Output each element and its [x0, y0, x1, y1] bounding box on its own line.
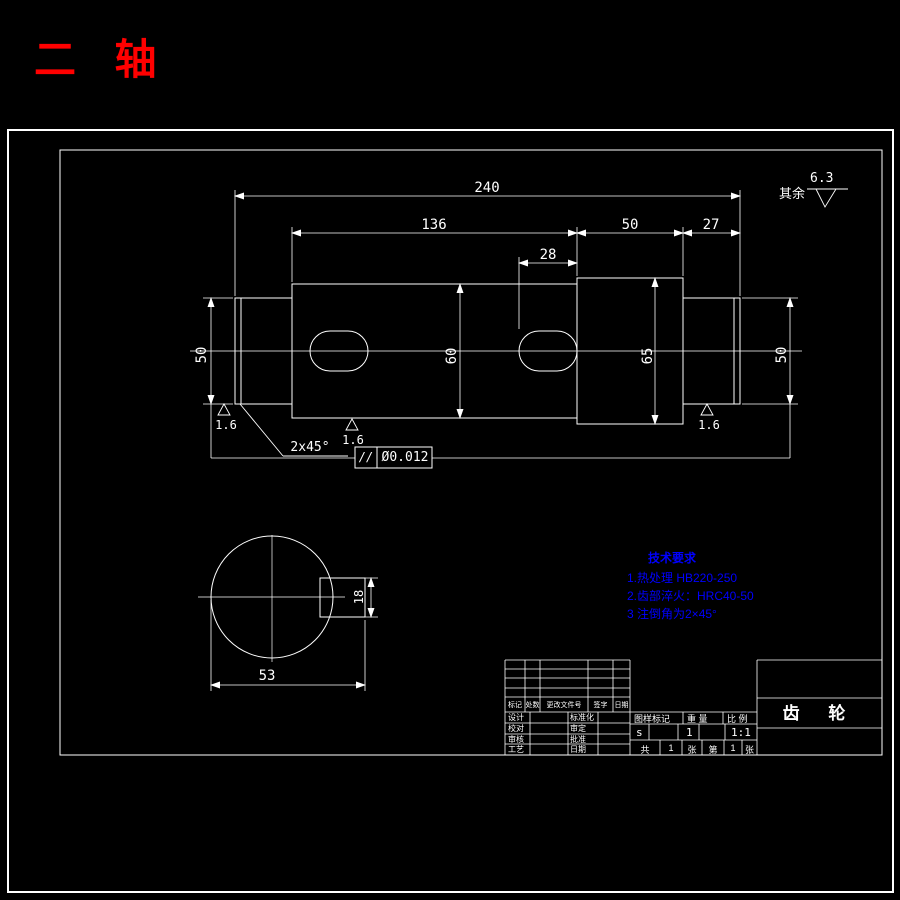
roughness-value-right: 1.6	[698, 419, 720, 431]
staff-design-label: 设计	[508, 714, 524, 722]
tech-requirement-1: 1.热处理 HB220-250	[627, 569, 737, 586]
staff-review-label: 审核	[508, 736, 524, 744]
parallelism-symbol: //	[359, 451, 373, 463]
cad-drawing-page: 二 轴 其余 6.3 240 136 50 27 28 50 60 65 50 …	[0, 0, 900, 900]
section-view	[198, 535, 365, 662]
roughness-value-left: 1.6	[215, 419, 237, 431]
dim-total-length: 240	[474, 181, 499, 195]
revision-header-date: 日期	[613, 700, 630, 710]
page-title: 二 轴	[34, 26, 171, 87]
sheet-number-value: 1	[724, 743, 742, 756]
outer-frame	[8, 130, 893, 892]
roughness-symbol-right	[701, 404, 713, 415]
revision-header-row: 标记 处数 更改文件号 签字 日期	[505, 700, 630, 710]
dim-dia-right: 50	[775, 347, 789, 364]
revision-header-count: 处数	[525, 700, 540, 710]
dim-keyway-length: 28	[540, 248, 557, 262]
parallelism-value: Ø0.012	[382, 451, 429, 464]
roughness-symbol-general	[807, 189, 848, 207]
dim-step-length: 50	[622, 218, 639, 232]
general-roughness-value: 6.3	[810, 172, 833, 185]
revision-header-sign: 签字	[588, 700, 613, 710]
part-name: 齿 轮	[783, 705, 858, 722]
sheet-total-unit: 张	[682, 743, 702, 756]
roughness-symbol-left	[218, 404, 230, 415]
tech-requirements-title: 技术要求	[648, 549, 696, 566]
staff-process-label: 工艺	[508, 746, 524, 754]
weight-header: 重 量	[687, 715, 708, 724]
sheet-number-unit: 张	[742, 743, 757, 756]
dim-right-length: 27	[703, 218, 720, 232]
staff-examine-label: 审定	[570, 725, 586, 733]
dim-section-keyway-width: 18	[353, 590, 365, 604]
roughness-value-mid: 1.6	[342, 434, 364, 446]
staff-standardization-label: 标准化	[570, 714, 594, 722]
roughness-marks	[218, 189, 848, 430]
sheet-number-label: 第	[702, 743, 724, 756]
sheet-count-row: 共 1 张 第 1 张	[630, 743, 757, 756]
chamfer-note: 2x45°	[290, 441, 329, 454]
dim-mid-length: 136	[421, 218, 446, 232]
drawing-mark-value: s	[636, 727, 643, 738]
staff-approve-label: 批准	[570, 736, 586, 744]
staff-date-label: 日期	[570, 746, 586, 754]
staff-check-label: 校对	[508, 725, 524, 733]
revision-header-mark: 标记	[505, 700, 525, 710]
dim-dia-step: 65	[641, 348, 655, 365]
drawing-mark-header: 图样标记	[634, 715, 670, 724]
dim-dia-left: 50	[195, 347, 209, 364]
tech-requirement-3: 3 注倒角为2×45°	[627, 605, 717, 622]
inner-frame	[60, 150, 882, 755]
sheet-total-label: 共	[630, 743, 660, 756]
shaft-outline	[190, 278, 802, 424]
scale-value: 1:1	[731, 727, 751, 738]
weight-value: 1	[686, 727, 693, 738]
general-roughness-prefix: 其余	[779, 187, 805, 200]
scale-header: 比 例	[727, 715, 748, 724]
dim-section-width: 53	[259, 669, 276, 683]
sheet-total-value: 1	[660, 743, 682, 756]
drawing-canvas	[0, 0, 900, 900]
tech-requirement-2: 2.齿部淬火：HRC40-50	[627, 587, 754, 604]
roughness-symbol-mid	[346, 419, 358, 430]
dim-dia-mid: 60	[445, 348, 459, 365]
revision-header-doc: 更改文件号	[540, 700, 588, 710]
